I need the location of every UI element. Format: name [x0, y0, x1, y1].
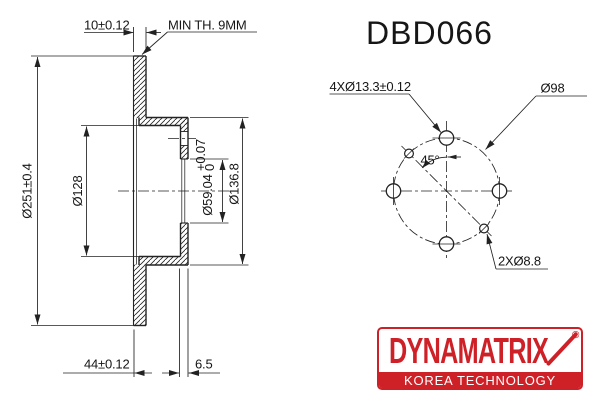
dim-hat-outer-diameter: Ø136.8 — [227, 163, 242, 204]
section-view: 10±0.12 MIN TH. 9MM Ø251±0.4 Ø128 Ø59.04… — [20, 18, 258, 378]
front-view: 4XØ13.3±0.12 Ø98 45° 2XØ8.8 — [330, 79, 588, 269]
brand-tagline: KOREA TECHNOLOGY — [379, 372, 581, 388]
min-thickness-note: MIN TH. 9MM — [168, 18, 246, 33]
brand-logo-top: DYNAMATRIX ® — [379, 329, 581, 372]
dim-center-bore-lower-tol: 0 — [202, 164, 217, 171]
dim-center-bore-value: Ø59.04 — [200, 174, 215, 215]
dim-mounting-thickness: 6.5 — [195, 357, 212, 372]
dim-overall-height: 44±0.12 — [84, 357, 130, 372]
brand-name: DYNAMATRIX — [389, 332, 548, 370]
dim-bolt-holes: 4XØ13.3±0.12 — [330, 79, 411, 94]
angle-between-holes: 45° — [421, 153, 440, 168]
section-thin-edges — [137, 119, 185, 265]
brand-logo: DYNAMATRIX ® KOREA TECHNOLOGY — [377, 327, 583, 390]
dim-outer-diameter: Ø251±0.4 — [20, 163, 35, 218]
dim-center-bore: Ø59.04 +0.07 0 — [193, 139, 217, 216]
part-number-title: DBD066 — [366, 15, 493, 52]
dim-pad-thickness: 10±0.12 — [84, 18, 130, 33]
dim-bolt-circle: Ø98 — [541, 81, 565, 96]
registered-trademark-icon: ® — [572, 330, 579, 341]
drawing-sheet: 10±0.12 MIN TH. 9MM Ø251±0.4 Ø128 Ø59.04… — [0, 0, 600, 400]
dim-locating-holes: 2XØ8.8 — [498, 254, 541, 269]
dim-hat-inner-diameter: Ø128 — [70, 175, 85, 206]
